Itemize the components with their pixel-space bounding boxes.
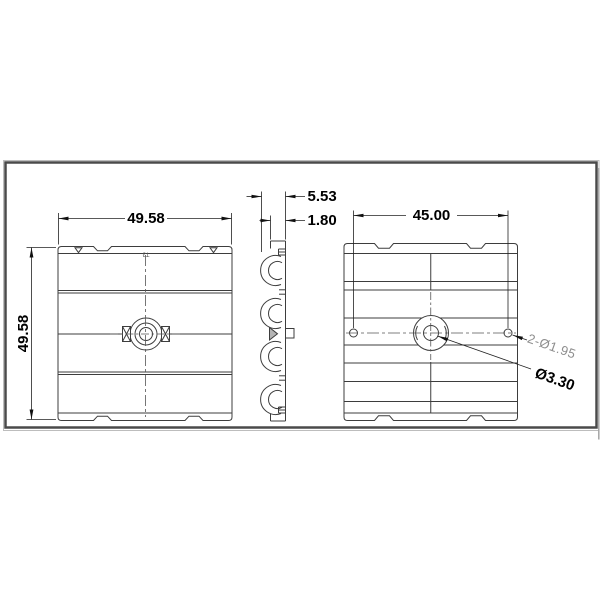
front-height-label: 49.58	[15, 315, 32, 353]
drawing-canvas: T3 49.58 49.58	[0, 0, 600, 600]
front-width-label: 49.58	[127, 210, 165, 227]
hole-pitch-label: 45.00	[413, 207, 451, 224]
engineering-drawing: T3 49.58 49.58	[0, 0, 600, 600]
side-center-peg	[286, 329, 295, 339]
profile-overall-label: 5.53	[308, 188, 337, 205]
drawing-frame	[4, 161, 600, 440]
profile-base-label: 1.80	[308, 212, 337, 229]
